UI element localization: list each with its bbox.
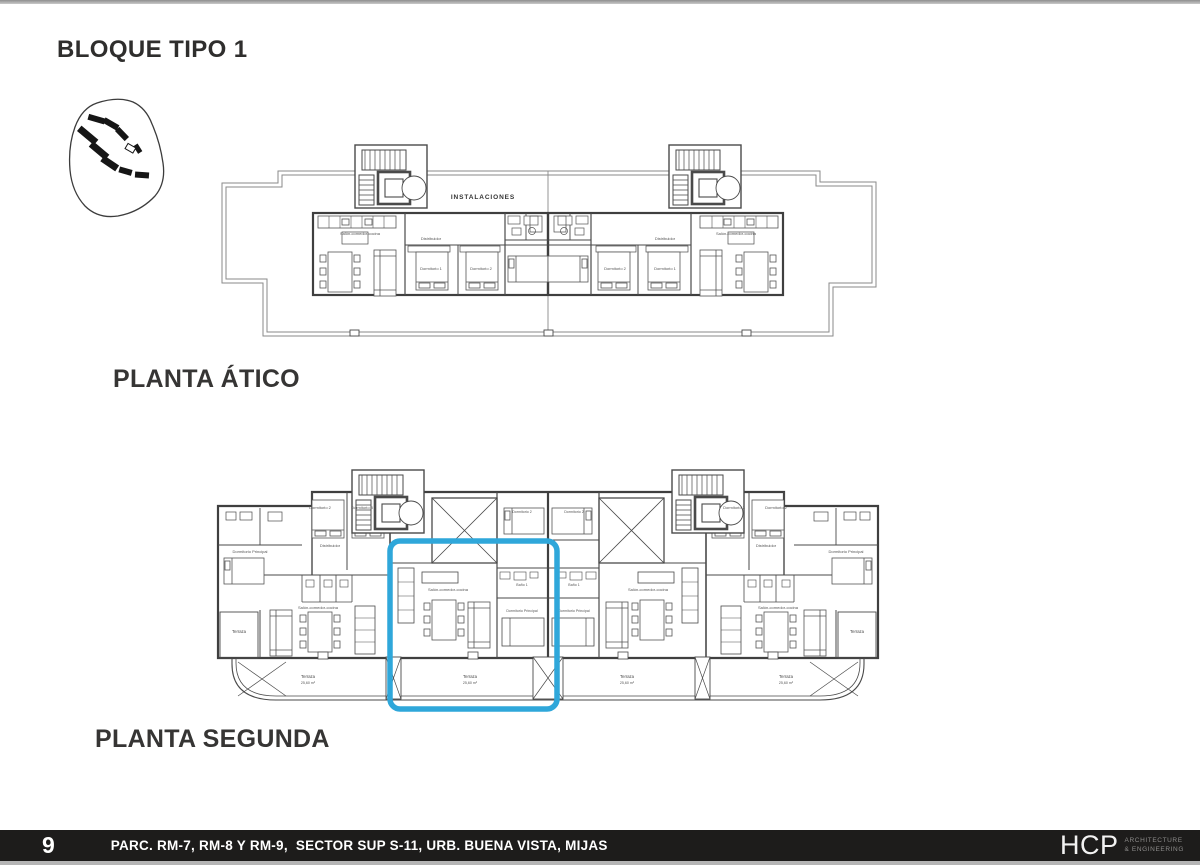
terrace-area: 25,60 m² [463, 681, 478, 685]
terrace-label: Terraza [463, 674, 478, 679]
room-label: Dormitorio Principal [506, 609, 538, 613]
plan-segunda: Salón-comedor-cocina Salón-comedor-cocin… [218, 470, 878, 709]
room-label: Salón-comedor-cocina [758, 605, 799, 610]
instalaciones-label: INSTALACIONES [451, 194, 515, 201]
terrace-label: Terraza [779, 674, 794, 679]
room-label: Dormitorio 2 [604, 266, 627, 271]
atico-plan-label: PLANTA ÁTICO [113, 365, 300, 394]
terrace-area: 25,60 m² [301, 681, 316, 685]
stair-tower [669, 145, 741, 208]
room-label: Baño 1 [516, 583, 527, 587]
room-label: Dormitorio 3 [723, 505, 746, 510]
room-label: Salón-comedor-cocina [628, 587, 669, 592]
room-label: Dormitorio 2 [309, 505, 332, 510]
segunda-plan-label: PLANTA SEGUNDA [95, 725, 330, 754]
room-label: Salón-comedor-cocina [428, 587, 469, 592]
room-label: Salón-comedor-cocina [340, 231, 381, 236]
plan-atico: INSTALACIONES Salón-comedor-cocina Salón… [222, 145, 876, 336]
site-location-sketch [70, 99, 164, 216]
room-label: Distribuidor [756, 543, 777, 548]
room-label: Salón-comedor-cocina [298, 605, 339, 610]
plan-sheet-page: BLOQUE TIPO 1 [0, 0, 1200, 867]
terrace-label: Terraza [850, 629, 865, 634]
hcp-logo-text: HCP [1060, 832, 1119, 859]
room-label: Dormitorio 2 [765, 505, 788, 510]
hcp-logo: HCP ARCHITECTURE & ENGINEERING [1060, 832, 1184, 859]
terrace-label: Terraza [232, 629, 247, 634]
room-label: Dormitorio 1 [654, 266, 677, 271]
page-number: 9 [42, 832, 55, 859]
room-label: Dormitorio Principal [558, 609, 590, 613]
room-label: Distribuidor [421, 236, 442, 241]
terrace-area: 25,60 m² [620, 681, 635, 685]
hcp-logo-sub1: ARCHITECTURE [1125, 837, 1184, 845]
terrace-label: Terraza [301, 674, 316, 679]
room-label: Dormitorio Principal [829, 549, 864, 554]
room-label: Dormitorio 1 [420, 266, 443, 271]
project-reference: PARC. RM-7, RM-8 Y RM-9, SECTOR SUP S-11… [111, 838, 608, 853]
terrace-label: Terraza [620, 674, 635, 679]
page-bottom-rule [0, 861, 1200, 865]
room-label: Dormitorio 2 [470, 266, 493, 271]
room-label: Salón-comedor-cocina [716, 231, 757, 236]
room-label: Dormitorio Principal [233, 549, 268, 554]
footer-bar: 9 PARC. RM-7, RM-8 Y RM-9, SECTOR SUP S-… [0, 830, 1200, 861]
hcp-logo-sub2: & ENGINEERING [1125, 846, 1184, 854]
room-label: Baño 1 [568, 583, 579, 587]
room-label: Distribuidor [655, 236, 676, 241]
room-label: Distribuidor [320, 543, 341, 548]
terrace-area: 25,60 m² [779, 681, 794, 685]
room-label: Dormitorio 2 [564, 510, 584, 514]
room-label: Dormitorio 2 [512, 510, 532, 514]
room-label: Dormitorio 3 [351, 505, 374, 510]
